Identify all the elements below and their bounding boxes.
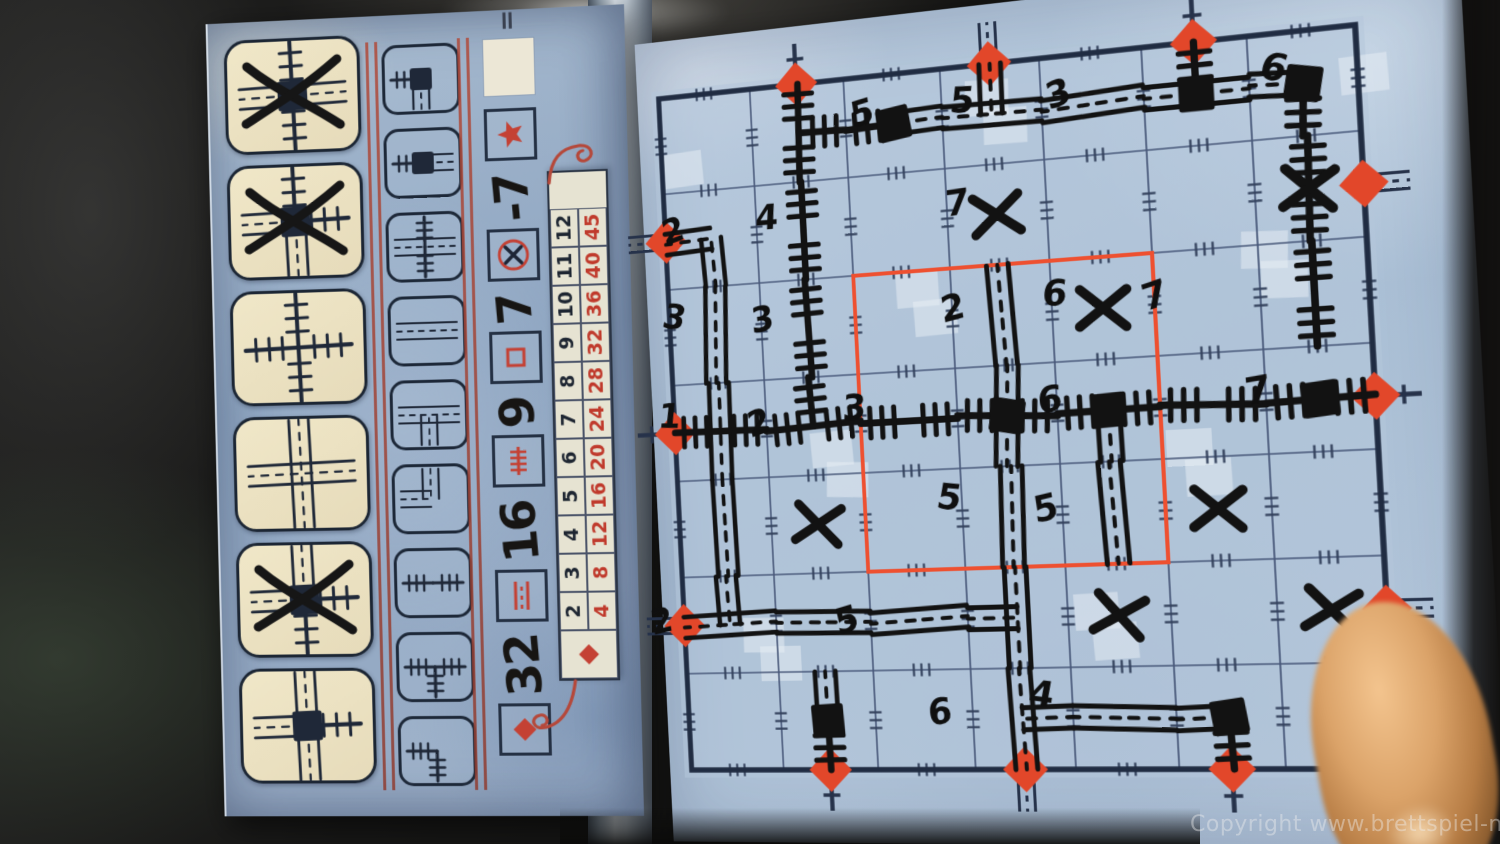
equals-sign: = xyxy=(492,9,523,32)
exit-diamond-icon xyxy=(573,639,604,670)
errors-icon xyxy=(494,235,533,274)
score-box xyxy=(487,228,541,282)
die-face-station-straight xyxy=(383,126,463,199)
exit-points-cell: 32 xyxy=(581,322,610,361)
exit-count-cell: 7 xyxy=(554,400,583,439)
score-box xyxy=(492,434,546,487)
exit-count-cell: 5 xyxy=(556,477,585,516)
exit-points-cell: 8 xyxy=(587,553,616,592)
exit-count-cell: 6 xyxy=(555,438,584,477)
turn-number: 4 xyxy=(755,197,779,240)
handwritten-score-value: 7 xyxy=(486,291,544,327)
exit-points-cell: 40 xyxy=(579,246,608,285)
table-shadow xyxy=(560,808,1200,844)
turn-number: 6 xyxy=(1037,377,1063,423)
special-tiles-column xyxy=(208,4,624,24)
center-squares-icon xyxy=(496,338,535,377)
turn-number: 7 xyxy=(944,180,970,226)
die-face-road-curve xyxy=(391,463,471,535)
exit-score-table: 2345678910111248121620242832364045 xyxy=(547,169,621,681)
photo-scene: 321697-7=57 2345678910111248121620242832… xyxy=(0,0,1500,844)
turn-number: 3 xyxy=(749,297,775,342)
exit-table-header xyxy=(560,630,618,679)
exit-count-cell: 10 xyxy=(552,285,581,324)
exit-points-cell: 36 xyxy=(580,284,609,323)
longest-rail-icon xyxy=(499,442,538,481)
special-tile-station-mixed-c xyxy=(239,668,378,784)
special-tile-road-crossroads xyxy=(233,414,371,532)
watercolor-patch xyxy=(661,150,704,190)
exit-count-cell: 3 xyxy=(558,553,587,592)
turn-number: 1 xyxy=(657,397,683,437)
dice-faces-column xyxy=(208,4,624,24)
handwritten-score-value: -7 xyxy=(482,170,542,224)
die-face-station-corner xyxy=(381,42,460,115)
die-face-overpass xyxy=(385,210,465,283)
die-face-rail-t xyxy=(395,631,475,702)
exit-points-cell: 16 xyxy=(585,476,614,515)
special-tile-station-mixed-a xyxy=(227,161,365,281)
turn-number: 7 xyxy=(1242,366,1273,414)
flourish-ornament xyxy=(540,127,604,186)
watercolor-patch xyxy=(1338,52,1389,96)
turn-number: 5 xyxy=(948,79,977,122)
turn-number: 6 xyxy=(926,689,954,734)
special-tile-station-cross-roads-rails xyxy=(224,35,362,156)
die-face-rail-curve xyxy=(397,716,477,786)
score-box xyxy=(495,569,549,622)
star-icon xyxy=(491,114,530,154)
exit-count-cell: 2 xyxy=(559,592,588,631)
total-box xyxy=(483,37,535,95)
exit-count-cell: 8 xyxy=(553,362,582,401)
score-item-longest-road: 16 xyxy=(492,500,550,622)
handwritten-score-value: 57 xyxy=(476,0,537,6)
exit-points-cell: 20 xyxy=(584,438,613,477)
exit-points-cell: 12 xyxy=(586,514,615,553)
score-box xyxy=(489,331,543,385)
die-face-road-straight xyxy=(387,295,467,367)
turn-number: 3 xyxy=(842,387,867,430)
special-tile-station-mixed-b xyxy=(236,541,375,658)
score-item-errors: -7 xyxy=(484,172,542,282)
watercolor-patch xyxy=(1166,428,1214,467)
handwritten-score-value: 16 xyxy=(490,498,551,564)
exit-count-cell: 9 xyxy=(553,323,582,362)
exit-count-cell: 12 xyxy=(550,208,579,247)
die-face-road-t xyxy=(389,379,469,451)
watermark-text: Copyright www.brettspiel-news.de xyxy=(1190,812,1500,837)
score-item-center-squares: 7 xyxy=(487,293,545,385)
exit-points-cell: 45 xyxy=(578,207,607,246)
exit-points-cell: 4 xyxy=(588,591,617,630)
exit-count-cell: 11 xyxy=(551,247,580,286)
score-item-star xyxy=(484,107,538,161)
watercolor-patch xyxy=(1241,230,1288,269)
handwritten-score-value: 9 xyxy=(488,394,546,430)
score-item-total: =57 xyxy=(478,0,537,96)
longest-road-icon xyxy=(502,576,541,615)
turn-number: 6 xyxy=(1040,272,1069,315)
score-box xyxy=(484,107,538,161)
special-tile-rail-crossroads xyxy=(230,288,368,407)
exit-points-cell: 28 xyxy=(582,361,611,400)
score-item-longest-rail: 9 xyxy=(489,396,547,487)
exit-points-cell: 24 xyxy=(583,399,612,438)
score-reference-page: 321697-7=57 2345678910111248121620242832… xyxy=(206,4,644,816)
turn-number: 2 xyxy=(648,599,676,644)
die-face-rail-straight xyxy=(393,547,473,618)
exit-count-cell: 4 xyxy=(557,515,586,554)
flourish-ornament xyxy=(521,679,586,750)
watercolor-patch xyxy=(810,429,855,468)
